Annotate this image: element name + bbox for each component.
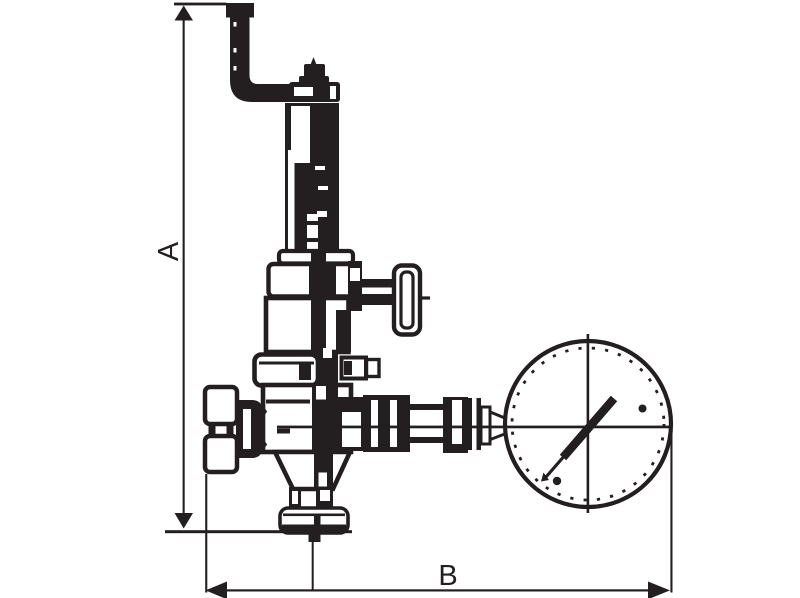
svg-text:A: A [153,241,185,261]
svg-text:B: B [438,560,457,592]
